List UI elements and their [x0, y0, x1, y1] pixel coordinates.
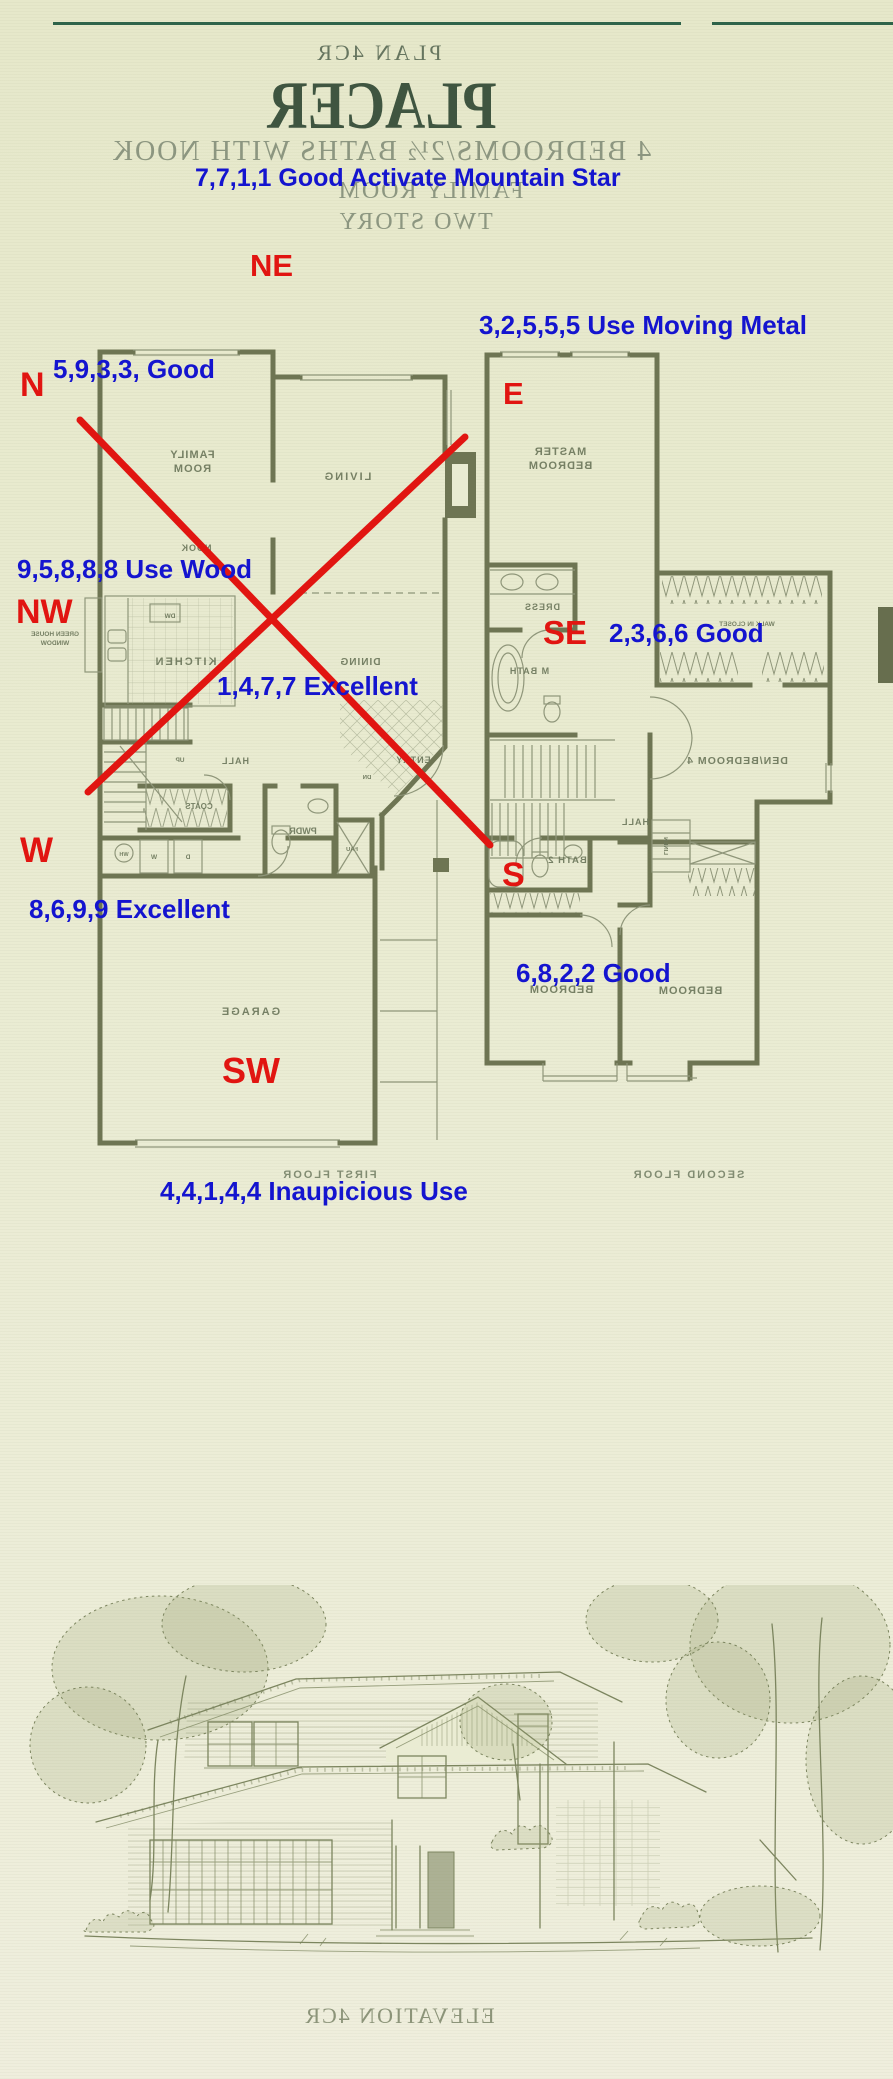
room-label-greenhouse1: GREEN HOUSE — [30, 631, 79, 638]
page-title: PLACER — [136, 66, 628, 145]
walkin-closet-rod-c — [762, 652, 824, 682]
walkin-closet-rod-b — [660, 652, 738, 682]
dress-sink-a — [501, 574, 523, 590]
direction-e: E — [503, 376, 524, 412]
note-moving-metal: 3,2,5,5,5 Use Moving Metal — [479, 310, 807, 341]
room-label-dress: DRESS — [524, 602, 560, 612]
room-label-family: FAMILY — [169, 449, 214, 461]
header-rule-right — [712, 22, 893, 25]
floor-plans-drawing: FAMILY ROOM LIVING NOOK DW GREEN HOUSE W… — [0, 330, 893, 1250]
plan-code: PLAN 4CR — [78, 40, 678, 66]
note-w-excellent: 8,6,9,9 Excellent — [29, 894, 230, 925]
porch-post — [433, 858, 449, 872]
room-label-fau: FAU — [346, 847, 358, 853]
caption-elevation: ELEVATION 4CR — [99, 2003, 699, 2029]
direction-s: S — [502, 856, 525, 895]
direction-ne: NE — [250, 248, 293, 284]
front-door — [428, 1852, 454, 1928]
bedroom2-closet — [688, 868, 755, 896]
room-label-hall-1f: HALL — [221, 756, 249, 766]
bedroom1-closet — [490, 893, 580, 913]
scanned-floorplan-page: PLAN 4CR PLACER 4 BEDROOMS/2½ BATHS WITH… — [0, 0, 893, 2079]
caption-second-floor: SECOND FLOOR — [632, 1169, 745, 1181]
room-label-garage: GARAGE — [220, 1006, 280, 1018]
header-rule-left — [53, 22, 681, 25]
room-label-kitchen: KITCHEN — [154, 656, 217, 668]
mbath-toilet — [544, 702, 560, 722]
mid-tree — [460, 1684, 552, 1800]
room-label-wh: WH — [119, 852, 128, 858]
room-label-dn: DN — [363, 775, 372, 781]
room-label-up: UP — [175, 757, 185, 764]
room-label-den: DEN/BEDROOM 4 — [686, 755, 788, 767]
subtitle-two-story: TWO STORY — [115, 209, 715, 236]
scan-artifact — [878, 607, 893, 683]
room-label-hall-2f: HALL — [621, 817, 649, 827]
room-label-coats: COATS — [185, 802, 213, 811]
room-label-d: D — [185, 854, 190, 861]
second-floor-plan: MASTER BEDROOM DRESS M BATH WALK IN CLOS… — [487, 352, 831, 1181]
coats-closet — [143, 789, 227, 827]
direction-n: N — [20, 366, 45, 405]
pwdr-sink — [308, 799, 328, 813]
walkin-closet-rod-a — [662, 576, 822, 604]
room-label-dw: DW — [164, 613, 176, 620]
note-s-good: 6,8,2,2 Good — [516, 958, 671, 989]
room-label-w: W — [150, 854, 157, 861]
room-label-pwdr: PWDR — [289, 826, 317, 836]
note-excellent-center: 1,4,7,7 Excellent — [217, 671, 418, 702]
note-se-good: 2,3,6,6 Good — [609, 618, 764, 649]
house-sketch — [96, 1672, 706, 1936]
room-label-bath2: BATH 2 — [547, 855, 587, 866]
room-label-dining: DINING — [340, 657, 381, 668]
room-label-family-room: ROOM — [173, 463, 211, 475]
direction-sw: SW — [222, 1050, 280, 1092]
room-label-living: LIVING — [323, 471, 372, 483]
dress-sink-b — [536, 574, 558, 590]
note-inauspicious: 4,4,1,4,4 Inaupicious Use — [160, 1176, 468, 1207]
room-label-master2: BEDROOM — [528, 460, 592, 472]
note-n-good: 5,9,3,3, Good — [53, 354, 215, 385]
room-label-mbath: M BATH — [509, 666, 549, 676]
direction-w: W — [20, 831, 53, 871]
room-label-linen: LINEN — [662, 837, 668, 855]
note-mountain-star: 7,7,1,1 Good Activate Mountain Star — [195, 164, 621, 193]
direction-nw: NW — [16, 593, 73, 632]
direction-se: SE — [543, 614, 587, 652]
room-label-master1: MASTER — [534, 446, 586, 458]
room-label-greenhouse2: WINDOW — [40, 640, 69, 647]
elevation-sketch — [0, 1585, 893, 2005]
mbath-tub — [492, 645, 524, 711]
note-use-wood: 9,5,8,8,8 Use Wood — [17, 554, 252, 585]
